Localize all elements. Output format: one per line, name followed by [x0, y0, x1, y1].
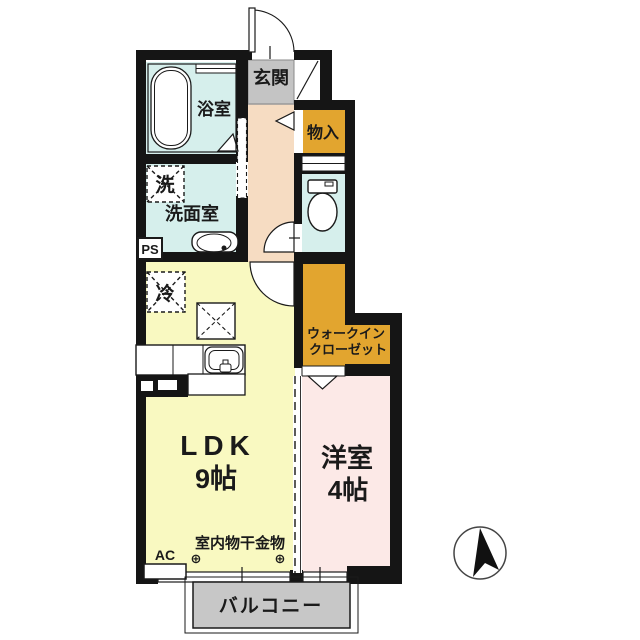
wall-bottom-right — [347, 566, 402, 584]
ldk-western-partition — [293, 376, 302, 573]
wall-right — [390, 313, 402, 584]
wall-top-left — [136, 50, 252, 60]
toilet-fixture — [308, 180, 337, 231]
refrigerator-label: 冷 — [155, 282, 174, 305]
wash-basin — [192, 232, 238, 252]
ac-label: AC — [155, 547, 175, 563]
wall-right-column — [345, 100, 355, 320]
wall-bath-bottom — [136, 154, 236, 164]
western-room-size-label: 4帖 — [328, 475, 368, 505]
floor-plan-drawing: 玄関 浴室 洗 洗面室 PS 物入 冷 ウォークイン クローゼット LDK 9帖… — [0, 0, 640, 640]
ac-unit-box — [144, 564, 186, 579]
storage-label: 物入 — [307, 123, 339, 142]
pipe-space-label: PS — [141, 242, 159, 257]
wall-hall-left-upper — [236, 102, 248, 120]
wic-label-line2: クローゼット — [309, 342, 387, 357]
washroom-label: 洗面室 — [165, 203, 219, 224]
wall-genkan-right — [320, 50, 332, 104]
wic-label-line1: ウォークイン — [307, 326, 385, 341]
drying-hook-left-icon: ⊕ — [191, 551, 202, 566]
storage-toilet-window — [302, 156, 345, 171]
floor-plan: 玄関 浴室 洗 洗面室 PS 物入 冷 ウォークイン クローゼット LDK 9帖… — [0, 0, 640, 640]
bathtub — [151, 67, 191, 149]
shoe-cabinet — [296, 60, 320, 100]
laundry-box-label: 洗 — [155, 173, 174, 196]
kitchen-table — [197, 303, 235, 339]
bathroom-label: 浴室 — [197, 99, 231, 119]
ldk-size-label: 9帖 — [195, 464, 237, 494]
kitchen-sink — [205, 347, 243, 373]
wall-wic-bottom — [345, 364, 390, 376]
kitchen-counter — [136, 345, 245, 397]
wall-left — [136, 50, 146, 584]
drying-hook-right-icon: ⊕ — [275, 551, 286, 566]
indoor-drying-label: 室内物干金物 — [195, 534, 285, 552]
north-arrow-icon — [454, 527, 506, 579]
genkan-label: 玄関 — [253, 67, 289, 88]
western-room-label: 洋室 — [321, 443, 373, 473]
ldk-label: LDK — [180, 430, 256, 461]
kitchen-stove-block — [136, 374, 245, 397]
washroom-sliding-door — [238, 118, 247, 198]
wall-wic-left — [294, 260, 303, 368]
balcony-label: バルコニー — [219, 595, 324, 617]
storage-door-gap — [294, 110, 303, 153]
wall-toilet-left — [294, 174, 302, 224]
bathroom-window — [196, 64, 236, 73]
entry-door — [249, 8, 294, 59]
